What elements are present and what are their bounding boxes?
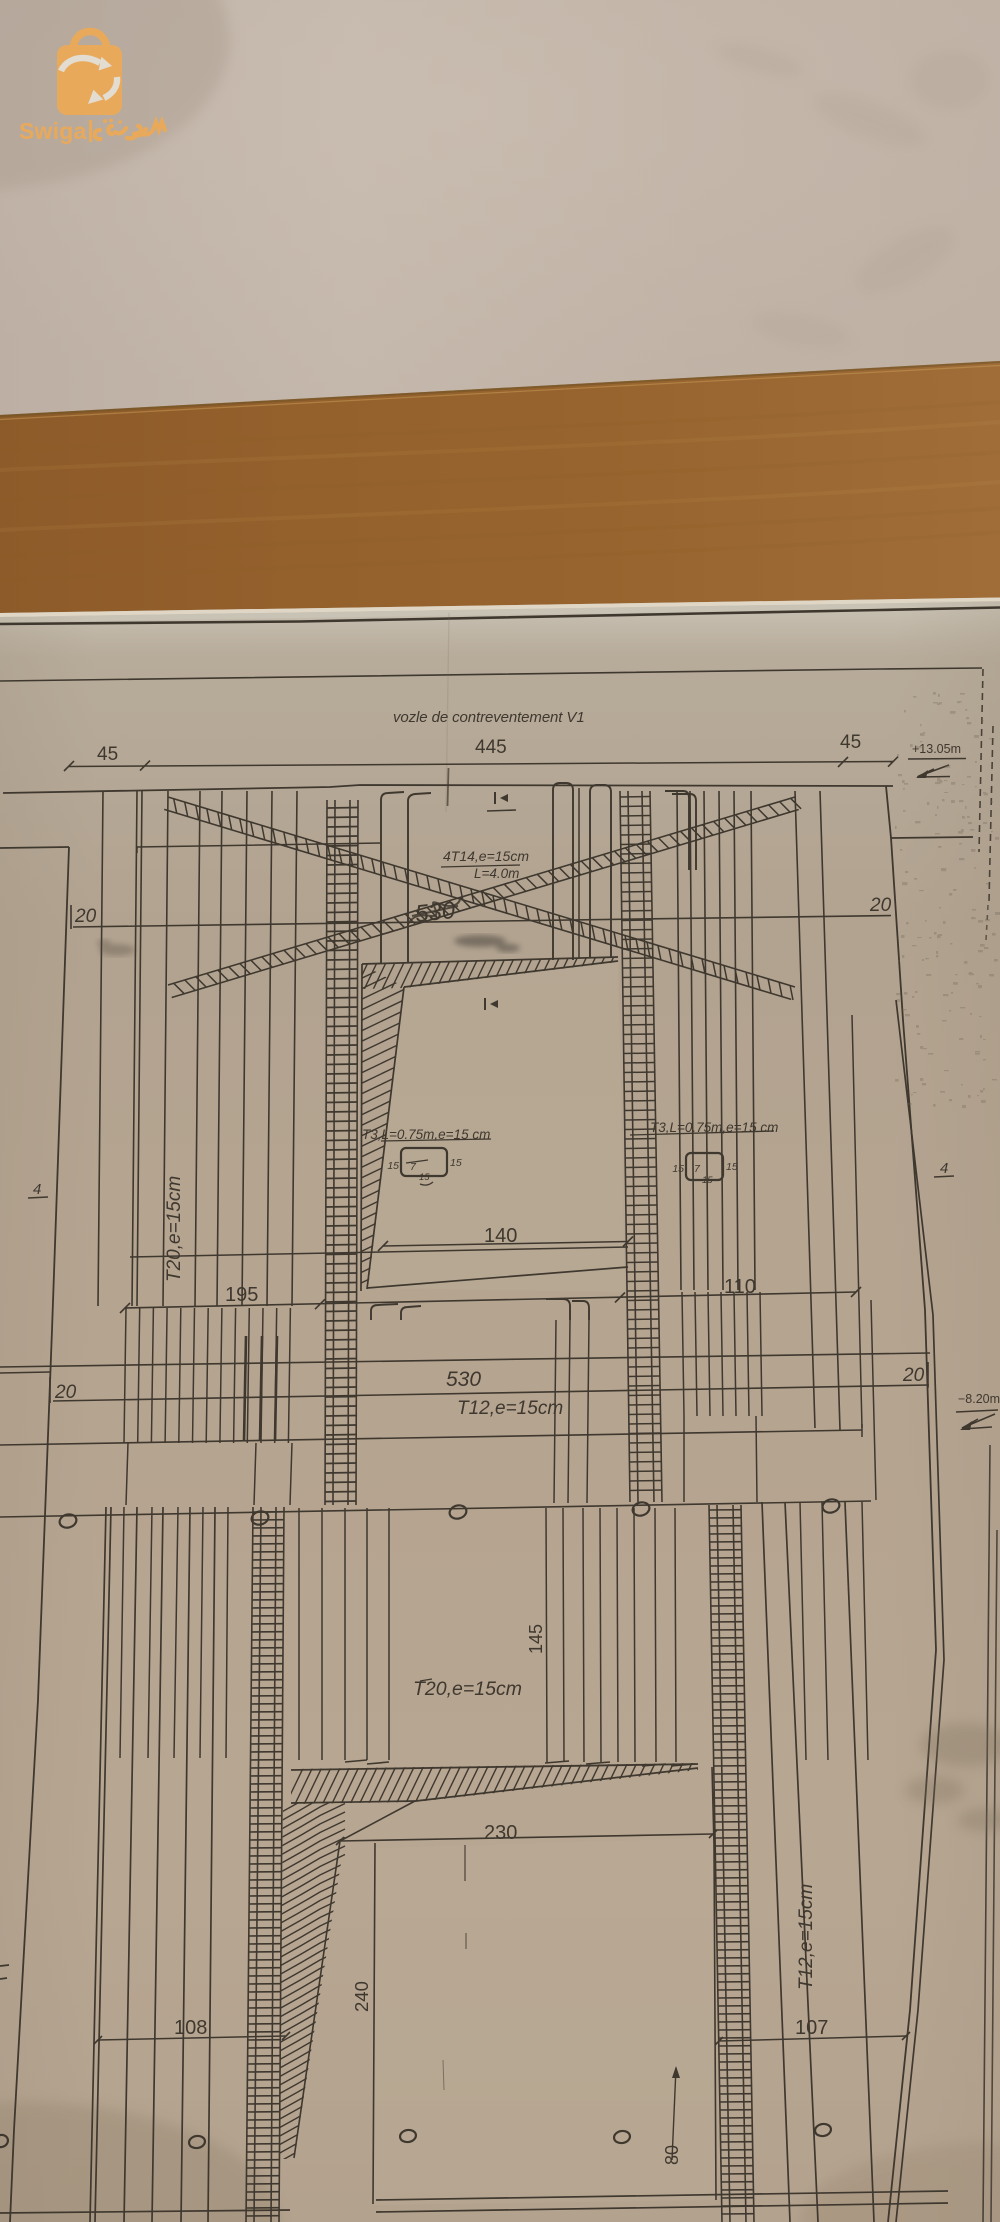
svg-text:15: 15	[726, 1161, 738, 1173]
svg-text:145: 145	[526, 1624, 546, 1654]
svg-text:vozle de contreventement V1: vozle de contreventement V1	[393, 709, 585, 726]
svg-text:195: 195	[225, 1284, 258, 1306]
svg-text:15: 15	[702, 1175, 713, 1186]
svg-text:15: 15	[387, 1160, 399, 1172]
svg-text:230: 230	[484, 1822, 517, 1844]
svg-text:15: 15	[450, 1157, 462, 1169]
svg-text:20: 20	[74, 906, 97, 927]
svg-text:−8.20m: −8.20m	[958, 1392, 1000, 1406]
svg-text:T20,e=15cm: T20,e=15cm	[413, 1678, 522, 1700]
svg-text:15: 15	[672, 1163, 684, 1175]
svg-text:T12,e=15cm: T12,e=15cm	[796, 1884, 817, 1990]
svg-text:445: 445	[475, 737, 507, 758]
svg-text:T12,e=15cm: T12,e=15cm	[457, 1398, 563, 1419]
svg-text:107: 107	[795, 2017, 828, 2039]
svg-text:20: 20	[902, 1365, 925, 1386]
svg-text:+13.05m: +13.05m	[912, 742, 961, 756]
svg-text:15: 15	[419, 1172, 430, 1183]
svg-text:L=4.0m: L=4.0m	[474, 866, 519, 881]
svg-text:45: 45	[97, 744, 118, 765]
svg-text:4T14,e=15cm: 4T14,e=15cm	[443, 848, 529, 864]
svg-text:T20,e=15cm: T20,e=15cm	[164, 1176, 185, 1282]
svg-text:4: 4	[940, 1160, 948, 1177]
svg-text:240: 240	[351, 1981, 372, 2012]
svg-text:108: 108	[174, 2017, 207, 2039]
svg-text:45: 45	[840, 732, 861, 753]
svg-text:4: 4	[33, 1181, 41, 1198]
svg-text:530: 530	[446, 1368, 481, 1391]
svg-text:Swiga: Swiga	[19, 118, 86, 144]
svg-text:20: 20	[869, 895, 892, 916]
svg-text:80: 80	[662, 2145, 682, 2165]
